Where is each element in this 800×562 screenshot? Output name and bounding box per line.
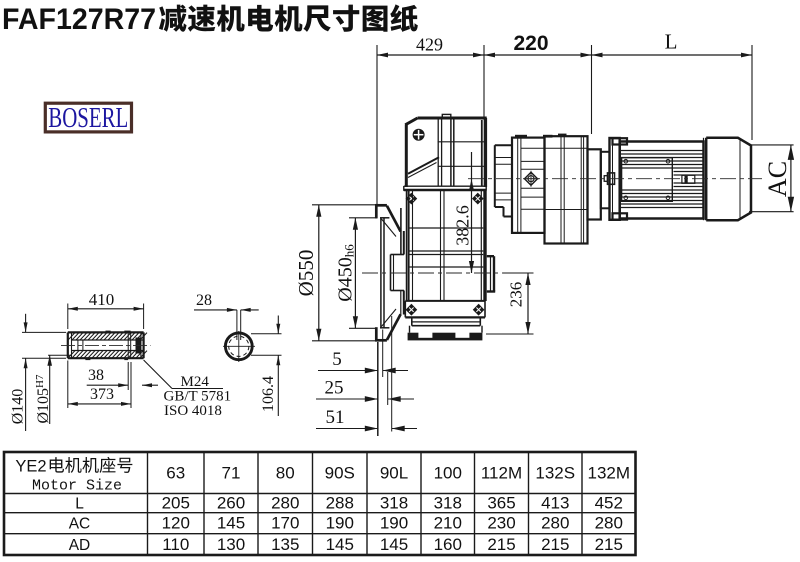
svg-text:260: 260 xyxy=(217,494,245,513)
svg-text:215: 215 xyxy=(541,535,569,554)
svg-text:190: 190 xyxy=(326,514,354,533)
svg-text:318: 318 xyxy=(434,494,462,513)
svg-text:429: 429 xyxy=(416,35,443,55)
svg-text:71: 71 xyxy=(222,464,241,483)
svg-text:132S: 132S xyxy=(535,464,575,483)
svg-text:AC: AC xyxy=(763,161,792,197)
svg-text:130: 130 xyxy=(217,535,245,554)
svg-text:YE2: YE2 xyxy=(15,458,46,476)
svg-text:L: L xyxy=(75,496,84,513)
svg-text:FAF127R77: FAF127R77 xyxy=(2,3,156,36)
svg-text:Motor Size: Motor Size xyxy=(32,478,122,495)
svg-text:132M: 132M xyxy=(587,464,630,483)
svg-text:220: 220 xyxy=(513,32,548,55)
svg-text:280: 280 xyxy=(271,494,299,513)
svg-text:210: 210 xyxy=(434,514,462,533)
svg-text:205: 205 xyxy=(162,494,190,513)
svg-text:ISO 4018: ISO 4018 xyxy=(164,403,222,419)
svg-text:L: L xyxy=(665,30,678,54)
svg-text:80: 80 xyxy=(276,464,295,483)
svg-text:135: 135 xyxy=(271,535,299,554)
svg-text:5: 5 xyxy=(332,349,342,370)
svg-text:AC: AC xyxy=(69,516,91,533)
svg-text:51: 51 xyxy=(326,407,345,428)
svg-text:90L: 90L xyxy=(380,464,408,483)
svg-text:145: 145 xyxy=(217,514,245,533)
svg-text:25: 25 xyxy=(325,378,344,399)
svg-text:120: 120 xyxy=(162,514,190,533)
svg-text:106.4: 106.4 xyxy=(260,376,277,412)
svg-text:38: 38 xyxy=(88,367,104,384)
svg-text:100: 100 xyxy=(434,464,462,483)
svg-text:280: 280 xyxy=(541,514,569,533)
svg-text:280: 280 xyxy=(595,514,623,533)
svg-text:452: 452 xyxy=(595,494,623,513)
svg-text:215: 215 xyxy=(595,535,623,554)
svg-text:318: 318 xyxy=(380,494,408,513)
svg-text:160: 160 xyxy=(434,535,462,554)
svg-text:Ø550: Ø550 xyxy=(294,250,318,297)
svg-text:145: 145 xyxy=(326,535,354,554)
svg-text:288: 288 xyxy=(326,494,354,513)
svg-text:110: 110 xyxy=(162,535,189,554)
svg-text:170: 170 xyxy=(271,514,299,533)
svg-text:63: 63 xyxy=(166,464,185,483)
svg-text:BOSERL: BOSERL xyxy=(48,102,128,134)
svg-text:382.6: 382.6 xyxy=(453,205,473,246)
svg-text:410: 410 xyxy=(89,290,115,309)
svg-text:AD: AD xyxy=(69,537,91,554)
svg-text:145: 145 xyxy=(380,535,408,554)
svg-text:230: 230 xyxy=(487,514,515,533)
svg-text:365: 365 xyxy=(487,494,515,513)
svg-text:215: 215 xyxy=(487,535,515,554)
svg-text:236: 236 xyxy=(507,282,526,308)
svg-text:112M: 112M xyxy=(481,464,522,483)
svg-text:413: 413 xyxy=(541,494,569,513)
svg-text:Ø140: Ø140 xyxy=(9,389,26,425)
svg-text:190: 190 xyxy=(380,514,408,533)
svg-text:28: 28 xyxy=(196,292,212,309)
svg-text:373: 373 xyxy=(90,386,114,403)
svg-text:90S: 90S xyxy=(325,464,355,483)
